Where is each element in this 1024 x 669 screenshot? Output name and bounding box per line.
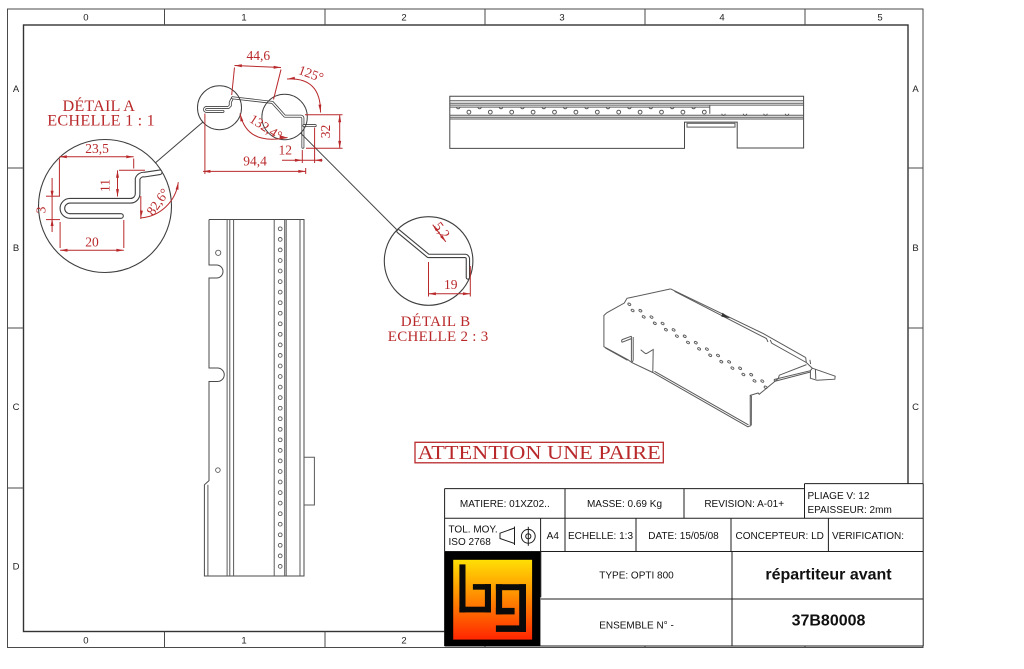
svg-text:ECHELLE 2 : 3: ECHELLE 2 : 3	[388, 329, 489, 345]
svg-text:CONCEPTEUR: LD: CONCEPTEUR: LD	[736, 531, 824, 542]
svg-text:PLIAGE V: 12: PLIAGE V: 12	[808, 491, 870, 502]
svg-text:2: 2	[401, 636, 406, 647]
svg-text:REVISION: A-01+: REVISION: A-01+	[704, 499, 784, 510]
svg-text:A: A	[912, 84, 919, 95]
svg-text:D: D	[13, 562, 20, 573]
svg-text:A: A	[13, 84, 20, 95]
svg-text:2: 2	[401, 13, 406, 24]
svg-text:VERIFICATION:: VERIFICATION:	[832, 531, 904, 542]
svg-text:C: C	[13, 402, 20, 413]
svg-text:DATE: 15/05/08: DATE: 15/05/08	[648, 531, 719, 542]
svg-text:ISO 2768: ISO 2768	[449, 537, 492, 548]
svg-text:DÉTAIL B: DÉTAIL B	[401, 313, 470, 330]
svg-text:94,4: 94,4	[243, 154, 267, 169]
svg-text:4: 4	[719, 13, 724, 24]
svg-text:37B80008: 37B80008	[792, 613, 866, 630]
svg-text:C: C	[912, 402, 919, 413]
svg-text:TYPE: OPTI 800: TYPE: OPTI 800	[599, 571, 674, 582]
svg-text:ECHELLE: 1:3: ECHELLE: 1:3	[568, 531, 633, 542]
svg-text:3: 3	[34, 206, 49, 213]
svg-text:1: 1	[241, 636, 246, 647]
svg-text:ATTENTION UNE PAIRE: ATTENTION UNE PAIRE	[418, 442, 661, 464]
svg-text:0: 0	[83, 13, 88, 24]
svg-text:11: 11	[98, 179, 113, 192]
svg-text:23,5: 23,5	[85, 141, 109, 156]
svg-text:32: 32	[318, 125, 333, 139]
svg-text:19: 19	[444, 277, 458, 292]
svg-text:MASSE: 0.69 Kg: MASSE: 0.69 Kg	[587, 499, 662, 510]
svg-text:MATIERE: 01XZ02..: MATIERE: 01XZ02..	[460, 499, 550, 510]
svg-text:0: 0	[83, 636, 88, 647]
svg-text:20: 20	[85, 235, 99, 250]
svg-text:EPAISSEUR: 2mm: EPAISSEUR: 2mm	[808, 505, 892, 516]
svg-text:3: 3	[559, 13, 564, 24]
svg-text:ENSEMBLE N° -: ENSEMBLE N° -	[599, 621, 674, 632]
svg-text:répartiteur avant: répartiteur avant	[765, 566, 892, 583]
svg-text:1: 1	[241, 13, 246, 24]
svg-text:A4: A4	[547, 531, 560, 542]
svg-text:12: 12	[279, 143, 293, 158]
svg-text:44,6: 44,6	[246, 48, 270, 63]
svg-text:B: B	[912, 243, 918, 254]
svg-text:TOL. MOY.: TOL. MOY.	[449, 525, 498, 536]
svg-text:5: 5	[877, 13, 882, 24]
svg-text:B: B	[13, 243, 19, 254]
svg-text:ECHELLE 1 : 1: ECHELLE 1 : 1	[47, 112, 155, 130]
